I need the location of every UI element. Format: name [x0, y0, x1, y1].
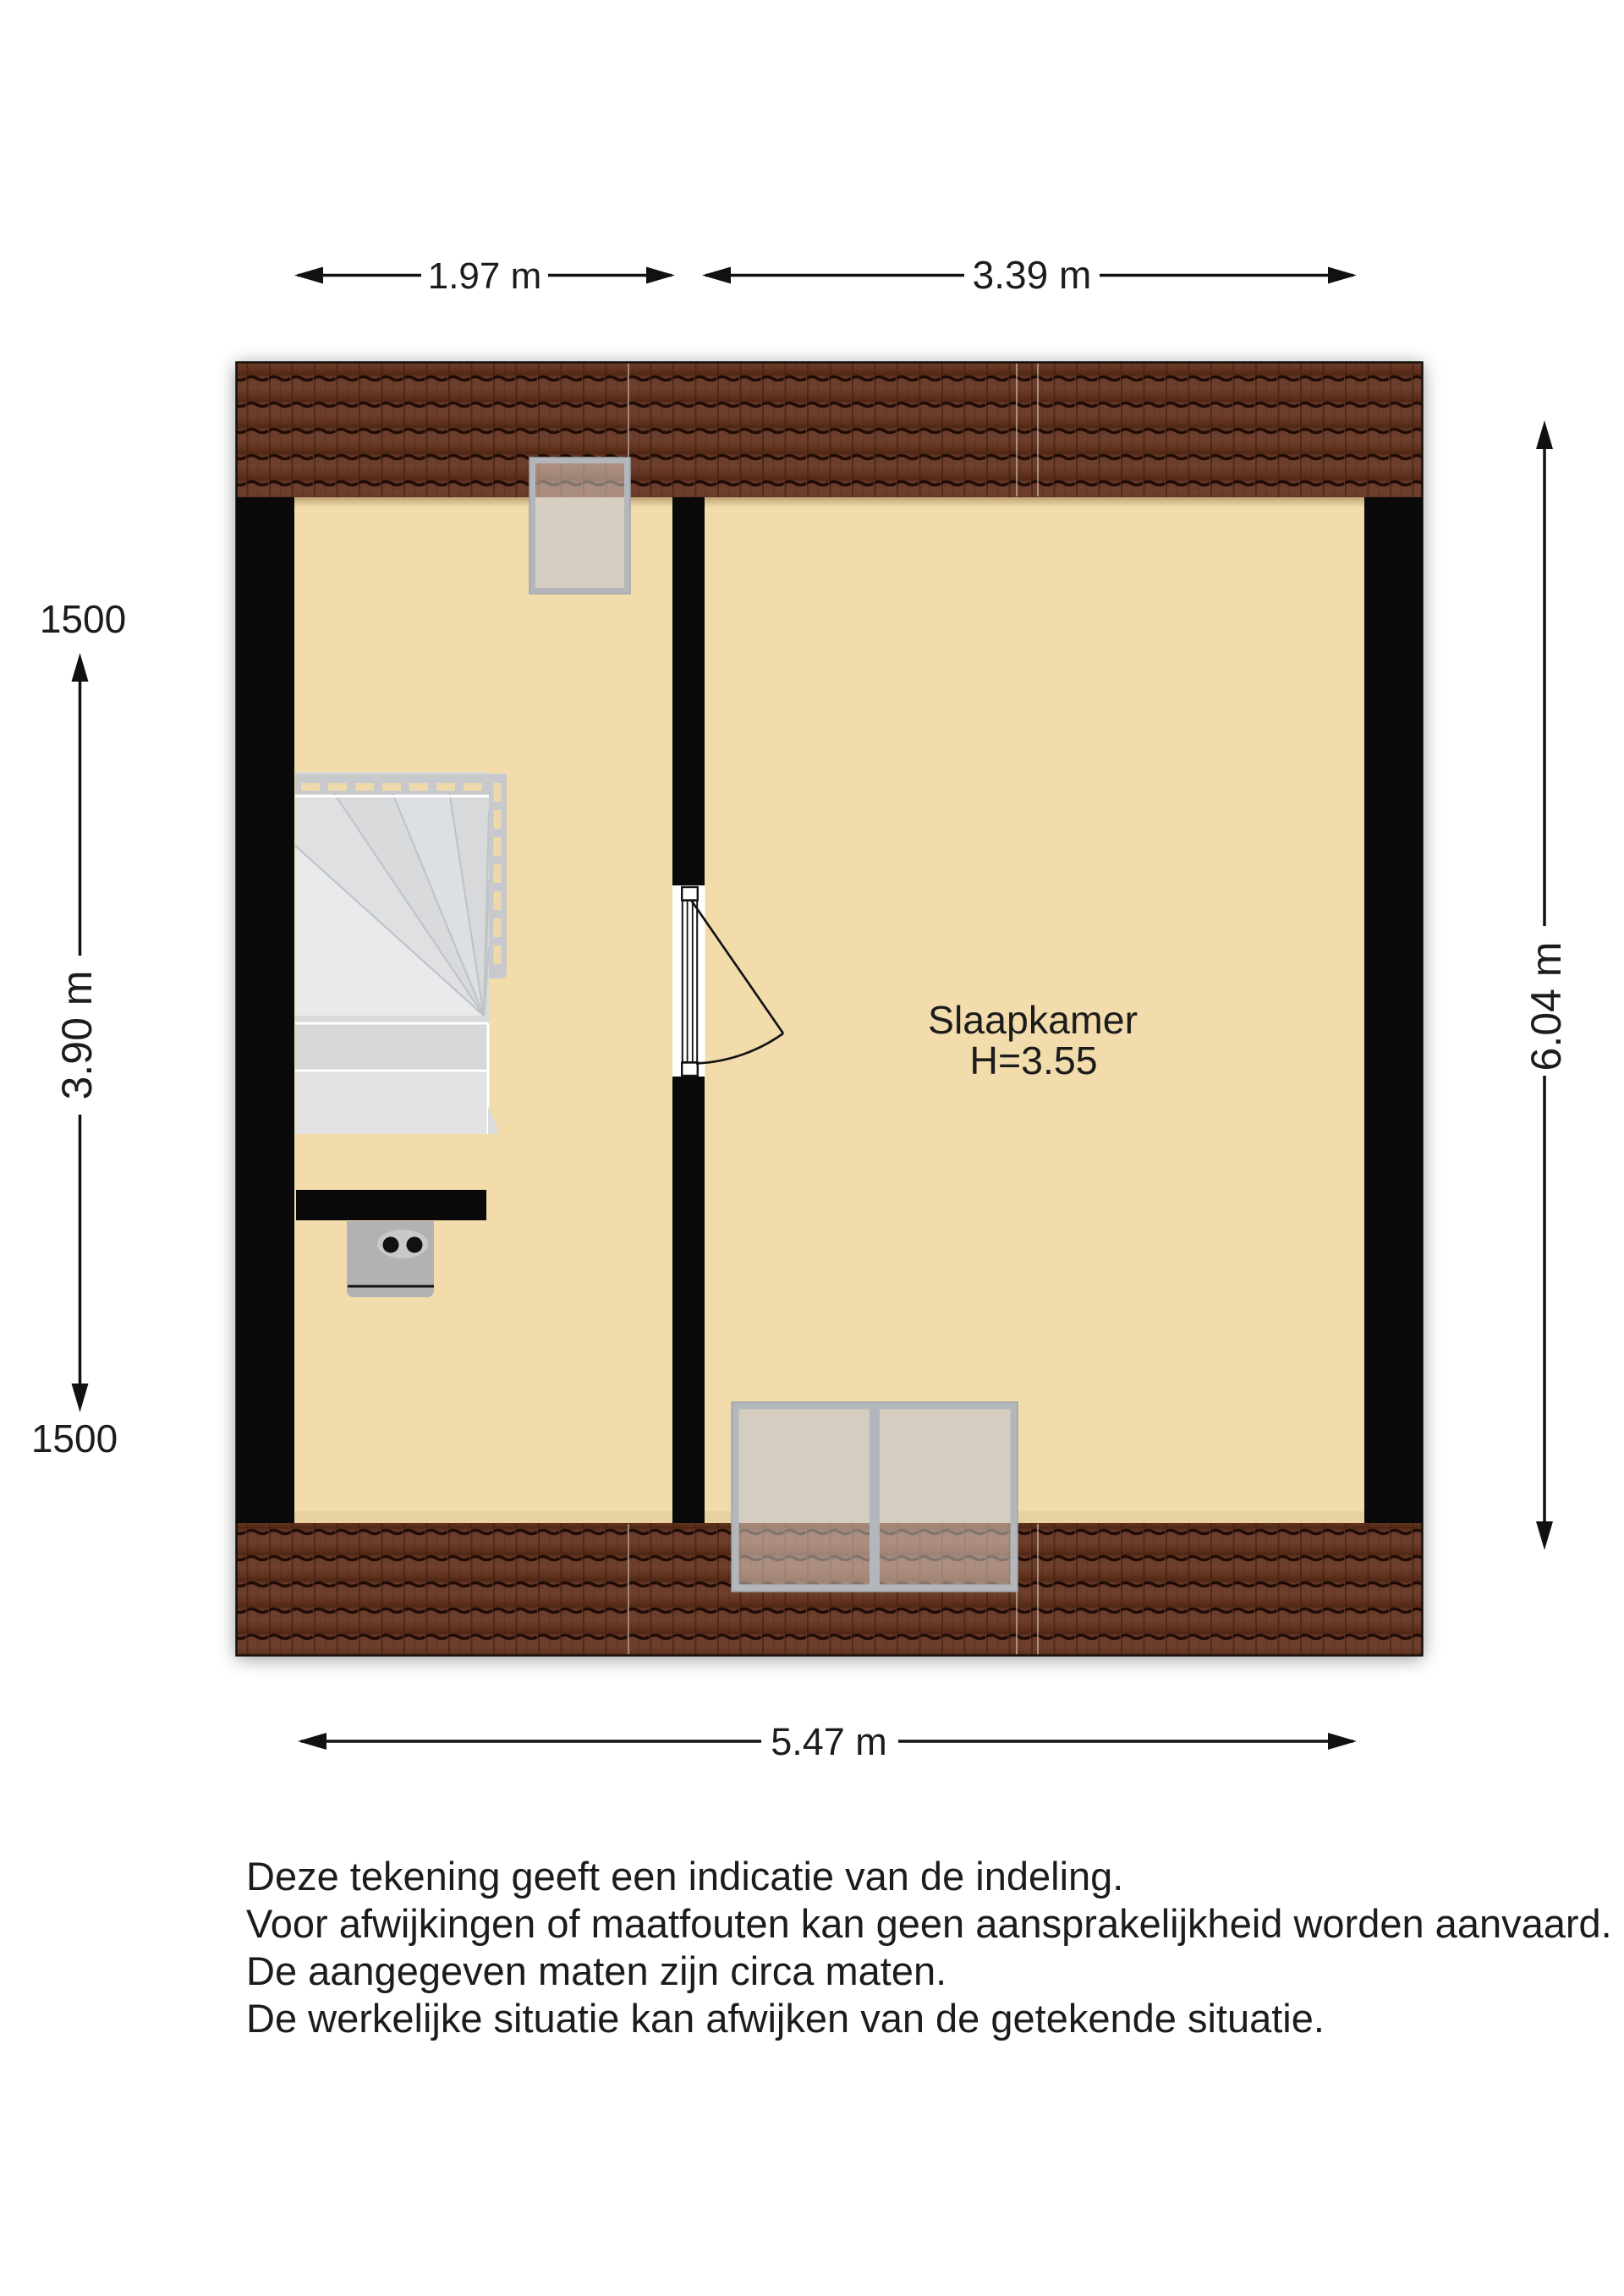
svg-text:1.97 m: 1.97 m [428, 255, 542, 297]
svg-text:H=3.55: H=3.55 [969, 1038, 1097, 1082]
svg-text:3.90 m: 3.90 m [53, 971, 101, 1100]
svg-text:5.47 m: 5.47 m [771, 1720, 887, 1763]
svg-text:Deze tekening geeft een indica: Deze tekening geeft een indicatie van de… [246, 1854, 1123, 1899]
svg-text:3.39 m: 3.39 m [973, 253, 1092, 297]
svg-text:Voor afwijkingen of maatfouten: Voor afwijkingen of maatfouten kan geen … [246, 1901, 1612, 1946]
svg-text:De aangegeven maten zijn circa: De aangegeven maten zijn circa maten. [246, 1948, 946, 1993]
svg-text:1500: 1500 [31, 1417, 118, 1460]
svg-text:1500: 1500 [40, 597, 126, 641]
svg-text:De werkelijke situatie kan afw: De werkelijke situatie kan afwijken van … [246, 1996, 1325, 2041]
svg-text:6.04 m: 6.04 m [1522, 942, 1570, 1071]
svg-text:Slaapkamer: Slaapkamer [928, 998, 1138, 1042]
